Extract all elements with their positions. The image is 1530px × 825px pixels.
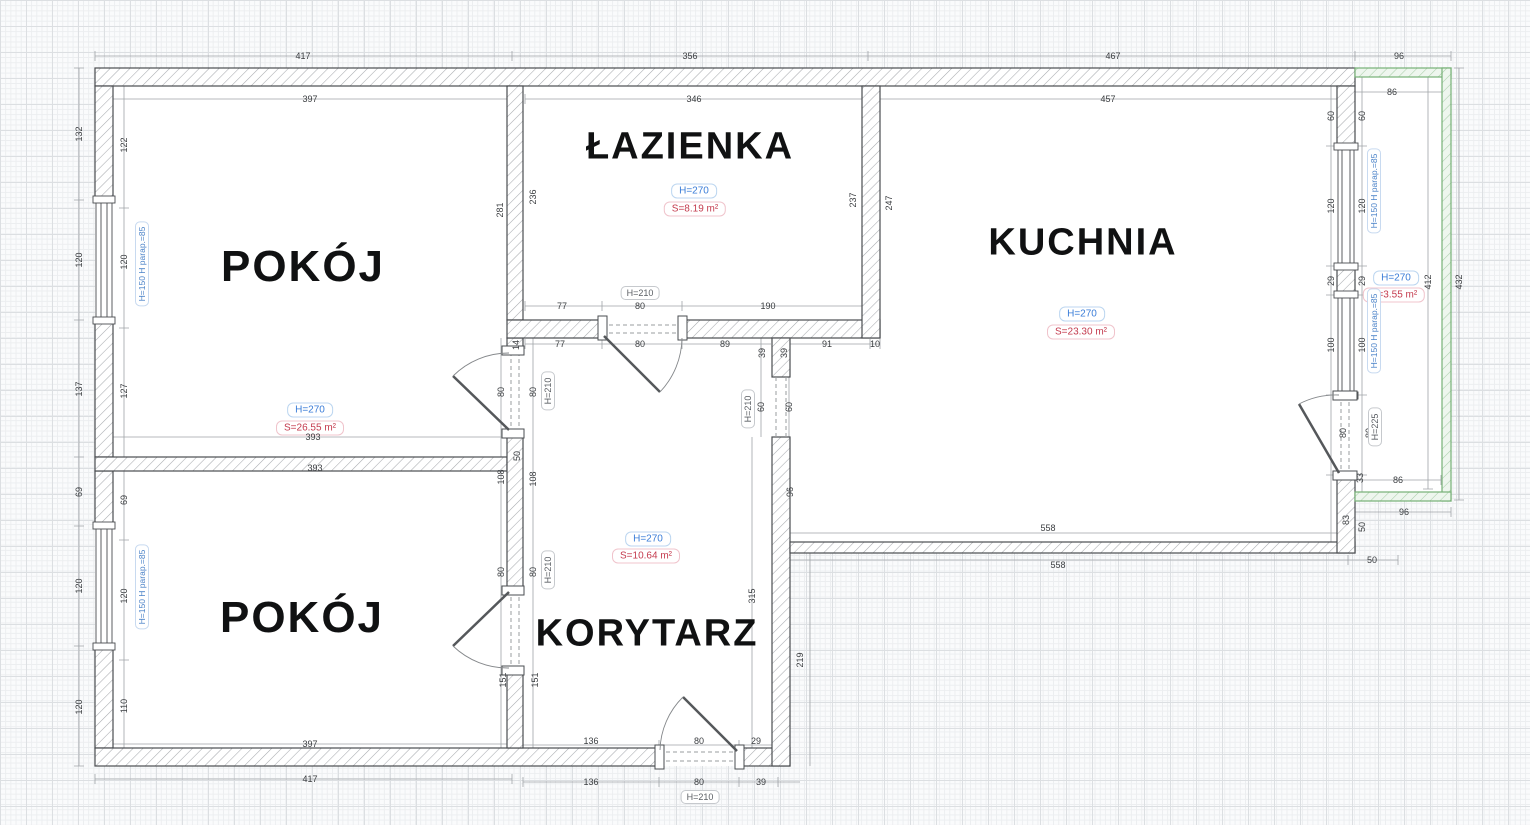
dimension-label: 120	[74, 699, 84, 714]
dimension-label: 50	[512, 451, 522, 461]
dimension-label: 137	[74, 381, 84, 396]
height-badge-pokoj-top: H=270	[287, 403, 333, 418]
dimension-label: 120	[119, 254, 129, 269]
door-height-label: H=225	[1368, 408, 1382, 447]
dimension-label: 315	[747, 588, 757, 603]
dimension-label: 397	[302, 739, 317, 749]
dimension-label: 190	[760, 301, 775, 311]
dimension-label: 69	[74, 487, 84, 497]
dimension-label: 236	[528, 189, 538, 204]
dimension-label: 120	[119, 588, 129, 603]
labels-layer: POKÓJ ŁAZIENKA KUCHNIA POKÓJ KORYTARZ H=…	[0, 0, 1530, 825]
area-badge-korytarz: S=10.64 m²	[612, 549, 680, 564]
dimension-label: 77	[555, 339, 565, 349]
window-label: H=150 H parap.=85	[135, 545, 149, 630]
dimension-label: 60	[1357, 111, 1367, 121]
dimension-label: 558	[1050, 560, 1065, 570]
dimension-label: 122	[119, 137, 129, 152]
door-height-label: H=210	[621, 286, 660, 300]
dimension-label: 120	[1326, 198, 1336, 213]
room-name-kuchnia: KUCHNIA	[988, 222, 1177, 265]
dimension-label: 412	[1423, 274, 1433, 289]
dimension-label: 120	[74, 252, 84, 267]
height-badge-kuchnia: H=270	[1059, 307, 1105, 322]
door-height-label: H=210	[741, 390, 755, 429]
dimension-label: 83	[1341, 515, 1351, 525]
dimension-label: 96	[1399, 507, 1409, 517]
dimension-label: 89	[720, 339, 730, 349]
dimension-label: 86	[1387, 87, 1397, 97]
height-badge-lazienka: H=270	[671, 184, 717, 199]
dimension-label: 136	[583, 736, 598, 746]
room-name-pokoj-top: POKÓJ	[221, 242, 385, 292]
dimension-label: 100	[1326, 337, 1336, 352]
dimension-label: 39	[757, 348, 767, 358]
dimension-label: 558	[1040, 523, 1055, 533]
room-name-lazienka: ŁAZIENKA	[586, 126, 794, 169]
dimension-label: 50	[1367, 555, 1377, 565]
dimension-label: 120	[74, 578, 84, 593]
dimension-label: 60	[1326, 111, 1336, 121]
dimension-label: 86	[1393, 475, 1403, 485]
height-badge-balkon: H=270	[1373, 271, 1419, 286]
dimension-label: 50	[1357, 522, 1367, 532]
dimension-label: 417	[302, 774, 317, 784]
dimension-label: 80	[496, 567, 506, 577]
room-name-pokoj-bottom: POKÓJ	[220, 593, 384, 643]
dimension-label: 457	[1100, 94, 1115, 104]
dimension-label: 356	[682, 51, 697, 61]
dimension-label: 29	[1326, 276, 1336, 286]
dimension-label: 69	[119, 495, 129, 505]
window-label: H=150 H parap.=85	[1367, 289, 1381, 374]
dimension-label: 29	[751, 736, 761, 746]
door-height-label: H=210	[681, 790, 720, 804]
dimension-label: 80	[694, 777, 704, 787]
dimension-label: 33	[1355, 473, 1365, 483]
dimension-label: 96	[785, 487, 795, 497]
dimension-label: 281	[495, 202, 505, 217]
window-label: H=150 H parap.=85	[135, 222, 149, 307]
dimension-label: 60	[756, 402, 766, 412]
door-height-label: H=210	[541, 551, 555, 590]
dimension-label: 80	[528, 387, 538, 397]
dimension-label: 80	[635, 301, 645, 311]
dimension-label: 136	[583, 777, 598, 787]
dimension-label: 151	[530, 672, 540, 687]
room-name-korytarz: KORYTARZ	[536, 613, 759, 656]
dimension-label: 108	[496, 469, 506, 484]
dimension-label: 39	[779, 348, 789, 358]
dimension-label: 219	[795, 652, 805, 667]
dimension-label: 39	[756, 777, 766, 787]
dimension-label: 127	[119, 383, 129, 398]
dimension-label: 80	[496, 387, 506, 397]
dimension-label: 77	[557, 301, 567, 311]
dimension-label: 29	[1357, 276, 1367, 286]
dimension-label: 91	[822, 339, 832, 349]
dimension-label: 247	[884, 195, 894, 210]
dimension-label: 393	[307, 463, 322, 473]
dimension-label: 151	[498, 672, 508, 687]
dimension-label: 417	[295, 51, 310, 61]
area-badge-lazienka: S=8.19 m²	[664, 202, 726, 217]
dimension-label: 80	[635, 339, 645, 349]
dimension-label: 432	[1454, 274, 1464, 289]
dimension-label: 467	[1105, 51, 1120, 61]
dimension-label: 60	[784, 402, 794, 412]
door-height-label: H=210	[541, 372, 555, 411]
height-badge-korytarz: H=270	[625, 532, 671, 547]
dimension-label: 14	[511, 340, 521, 350]
dimension-label: 110	[119, 699, 129, 713]
dimension-label: 100	[1357, 337, 1367, 352]
dimension-label: 80	[1338, 428, 1348, 438]
floor-plan-canvas: POKÓJ ŁAZIENKA KUCHNIA POKÓJ KORYTARZ H=…	[0, 0, 1530, 825]
dimension-label: 346	[686, 94, 701, 104]
dimension-label: 80	[694, 736, 704, 746]
dimension-label: 108	[528, 471, 538, 486]
dimension-label: 80	[528, 567, 538, 577]
dimension-label: 397	[302, 94, 317, 104]
dimension-label: 132	[74, 126, 84, 141]
dimension-label: 237	[848, 192, 858, 207]
dimension-label: 393	[305, 432, 320, 442]
dimension-label: 96	[1394, 51, 1404, 61]
area-badge-kuchnia: S=23.30 m²	[1047, 325, 1115, 340]
dimension-label: 10	[870, 339, 880, 349]
window-label: H=150 H parap.=85	[1367, 149, 1381, 234]
dimension-label: 120	[1357, 198, 1367, 213]
